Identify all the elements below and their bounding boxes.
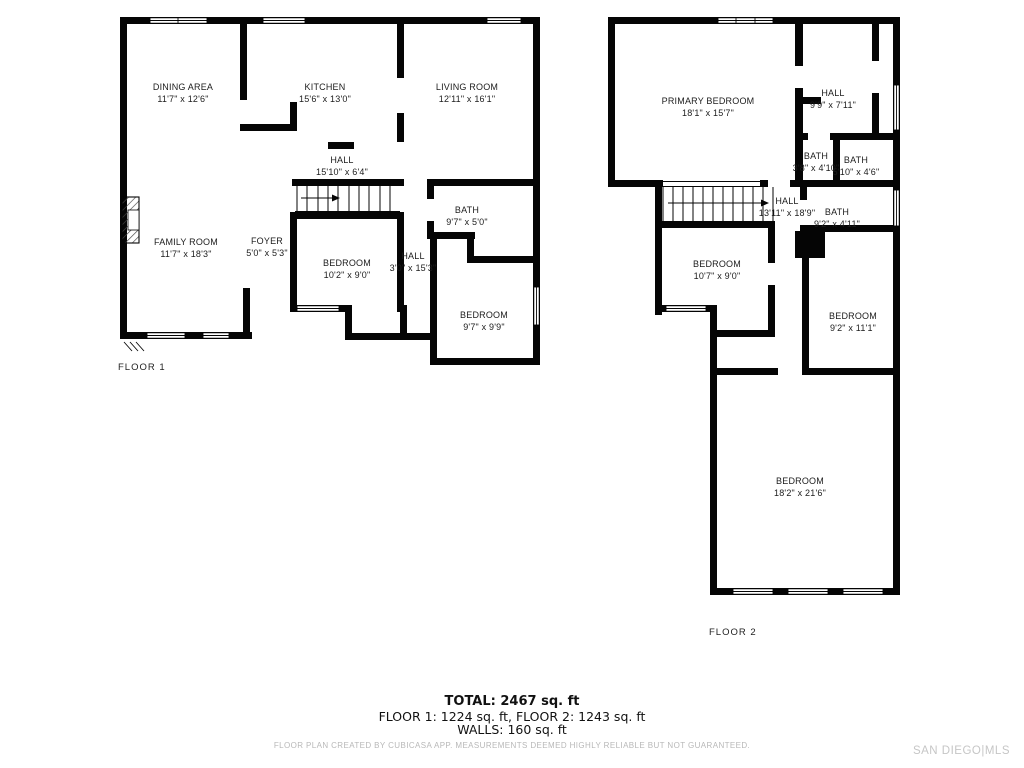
window bbox=[718, 18, 773, 23]
room-name: BEDROOM bbox=[693, 259, 741, 271]
room-label-bedroom-5: BEDROOM 18'2" x 21'6" bbox=[774, 476, 826, 499]
room-label-bedroom-2: BEDROOM 9'7" x 9'9" bbox=[460, 310, 508, 333]
room-label-family-room: FAMILY ROOM 11'7" x 18'3" bbox=[154, 237, 218, 260]
room-label-kitchen: KITCHEN 15'6" x 13'0" bbox=[299, 82, 351, 105]
room-dims: 5'0" x 5'3" bbox=[246, 248, 288, 260]
room-name: HALL bbox=[810, 88, 856, 100]
window bbox=[534, 287, 539, 325]
window bbox=[894, 190, 899, 226]
window bbox=[150, 18, 207, 23]
entry-steps-icon bbox=[124, 342, 144, 351]
room-name: BEDROOM bbox=[829, 311, 877, 323]
room-label-bedroom-4: BEDROOM 9'2" x 11'1" bbox=[829, 311, 877, 334]
disclaimer-text: FLOOR PLAN CREATED BY CUBICASA APP. MEAS… bbox=[0, 741, 1024, 750]
floor1-label: FLOOR 1 bbox=[118, 362, 166, 373]
room-label-hall-main: HALL 13'11" x 18'9" bbox=[759, 196, 816, 219]
room-name: DINING AREA bbox=[153, 82, 213, 94]
window bbox=[147, 333, 185, 338]
room-dims: 9'9" x 7'11" bbox=[810, 100, 856, 112]
room-label-primary-bedroom: PRIMARY BEDROOM 18'1" x 15'7" bbox=[662, 96, 755, 119]
room-name: LIVING ROOM bbox=[436, 82, 498, 94]
window bbox=[843, 589, 883, 594]
room-name: BATH bbox=[833, 155, 880, 167]
window bbox=[487, 18, 521, 23]
room-dims: 9'7" x 5'0" bbox=[446, 217, 488, 229]
stairs-icon bbox=[663, 182, 773, 222]
window bbox=[666, 306, 706, 311]
room-label-hall-upper-right: HALL 9'9" x 7'11" bbox=[810, 88, 856, 111]
room-name: BEDROOM bbox=[460, 310, 508, 322]
room-dims: 9'2" x 4'11" bbox=[814, 219, 860, 231]
room-dims: 11'7" x 12'6" bbox=[153, 94, 213, 106]
room-name: BATH bbox=[814, 207, 860, 219]
room-name: FAMILY ROOM bbox=[154, 237, 218, 249]
room-label-living-room: LIVING ROOM 12'11" x 16'1" bbox=[436, 82, 498, 105]
walls-area-text: WALLS: 160 sq. ft bbox=[0, 722, 1024, 737]
mls-watermark: SAN DIEGO|MLS bbox=[913, 745, 1010, 757]
room-name: HALL bbox=[316, 155, 368, 167]
chimney-block bbox=[795, 231, 825, 258]
room-dims: 18'2" x 21'6" bbox=[774, 488, 826, 500]
room-label-bath-1: BATH 9'7" x 5'0" bbox=[446, 205, 488, 228]
room-name: FOYER bbox=[246, 236, 288, 248]
room-dims: 11'7" x 18'3" bbox=[154, 249, 218, 261]
window bbox=[733, 589, 773, 594]
fireplace-icon bbox=[122, 197, 139, 243]
room-name: BEDROOM bbox=[323, 258, 371, 270]
room-label-hall-upper: HALL 15'10" x 6'4" bbox=[316, 155, 368, 178]
room-dims: 15'10" x 6'4" bbox=[316, 167, 368, 179]
room-name: PRIMARY BEDROOM bbox=[662, 96, 755, 108]
room-name: KITCHEN bbox=[299, 82, 351, 94]
room-dims: 15'6" x 13'0" bbox=[299, 94, 351, 106]
room-dims: 9'7" x 9'9" bbox=[460, 322, 508, 334]
room-dims: 13'11" x 18'9" bbox=[759, 208, 816, 220]
room-label-hall-lower: HALL 3'0" x 15'3" bbox=[390, 251, 437, 274]
room-dims: 10'7" x 9'0" bbox=[693, 271, 741, 283]
window bbox=[297, 306, 339, 311]
floor1-windows bbox=[147, 18, 539, 338]
room-label-bath-small-right: BATH 5'10" x 4'6" bbox=[833, 155, 880, 178]
room-dims: 10'2" x 9'0" bbox=[323, 270, 371, 282]
room-label-bedroom-3: BEDROOM 10'7" x 9'0" bbox=[693, 259, 741, 282]
room-label-bath-3: BATH 9'2" x 4'11" bbox=[814, 207, 860, 230]
total-area-text: TOTAL: 2467 sq. ft bbox=[0, 694, 1024, 709]
window bbox=[203, 333, 229, 338]
room-label-foyer: FOYER 5'0" x 5'3" bbox=[246, 236, 288, 259]
window bbox=[788, 589, 828, 594]
room-label-bedroom-1: BEDROOM 10'2" x 9'0" bbox=[323, 258, 371, 281]
room-name: BEDROOM bbox=[774, 476, 826, 488]
room-dims: 9'2" x 11'1" bbox=[829, 323, 877, 335]
room-dims: 12'11" x 16'1" bbox=[436, 94, 498, 106]
room-name: BATH bbox=[446, 205, 488, 217]
floor-plan-drawing bbox=[0, 0, 1024, 768]
window bbox=[263, 18, 305, 23]
room-dims: 3'0" x 15'3" bbox=[390, 263, 437, 275]
stairs-icon bbox=[295, 186, 400, 212]
room-label-dining-area: DINING AREA 11'7" x 12'6" bbox=[153, 82, 213, 105]
room-dims: 18'1" x 15'7" bbox=[662, 108, 755, 120]
floor2-label: FLOOR 2 bbox=[709, 627, 757, 638]
room-dims: 5'10" x 4'6" bbox=[833, 167, 880, 179]
room-name: HALL bbox=[390, 251, 437, 263]
room-name: HALL bbox=[759, 196, 816, 208]
window bbox=[894, 85, 899, 130]
floor-plan-page: { "floor1": { "label": "FLOOR 1", "rooms… bbox=[0, 0, 1024, 768]
